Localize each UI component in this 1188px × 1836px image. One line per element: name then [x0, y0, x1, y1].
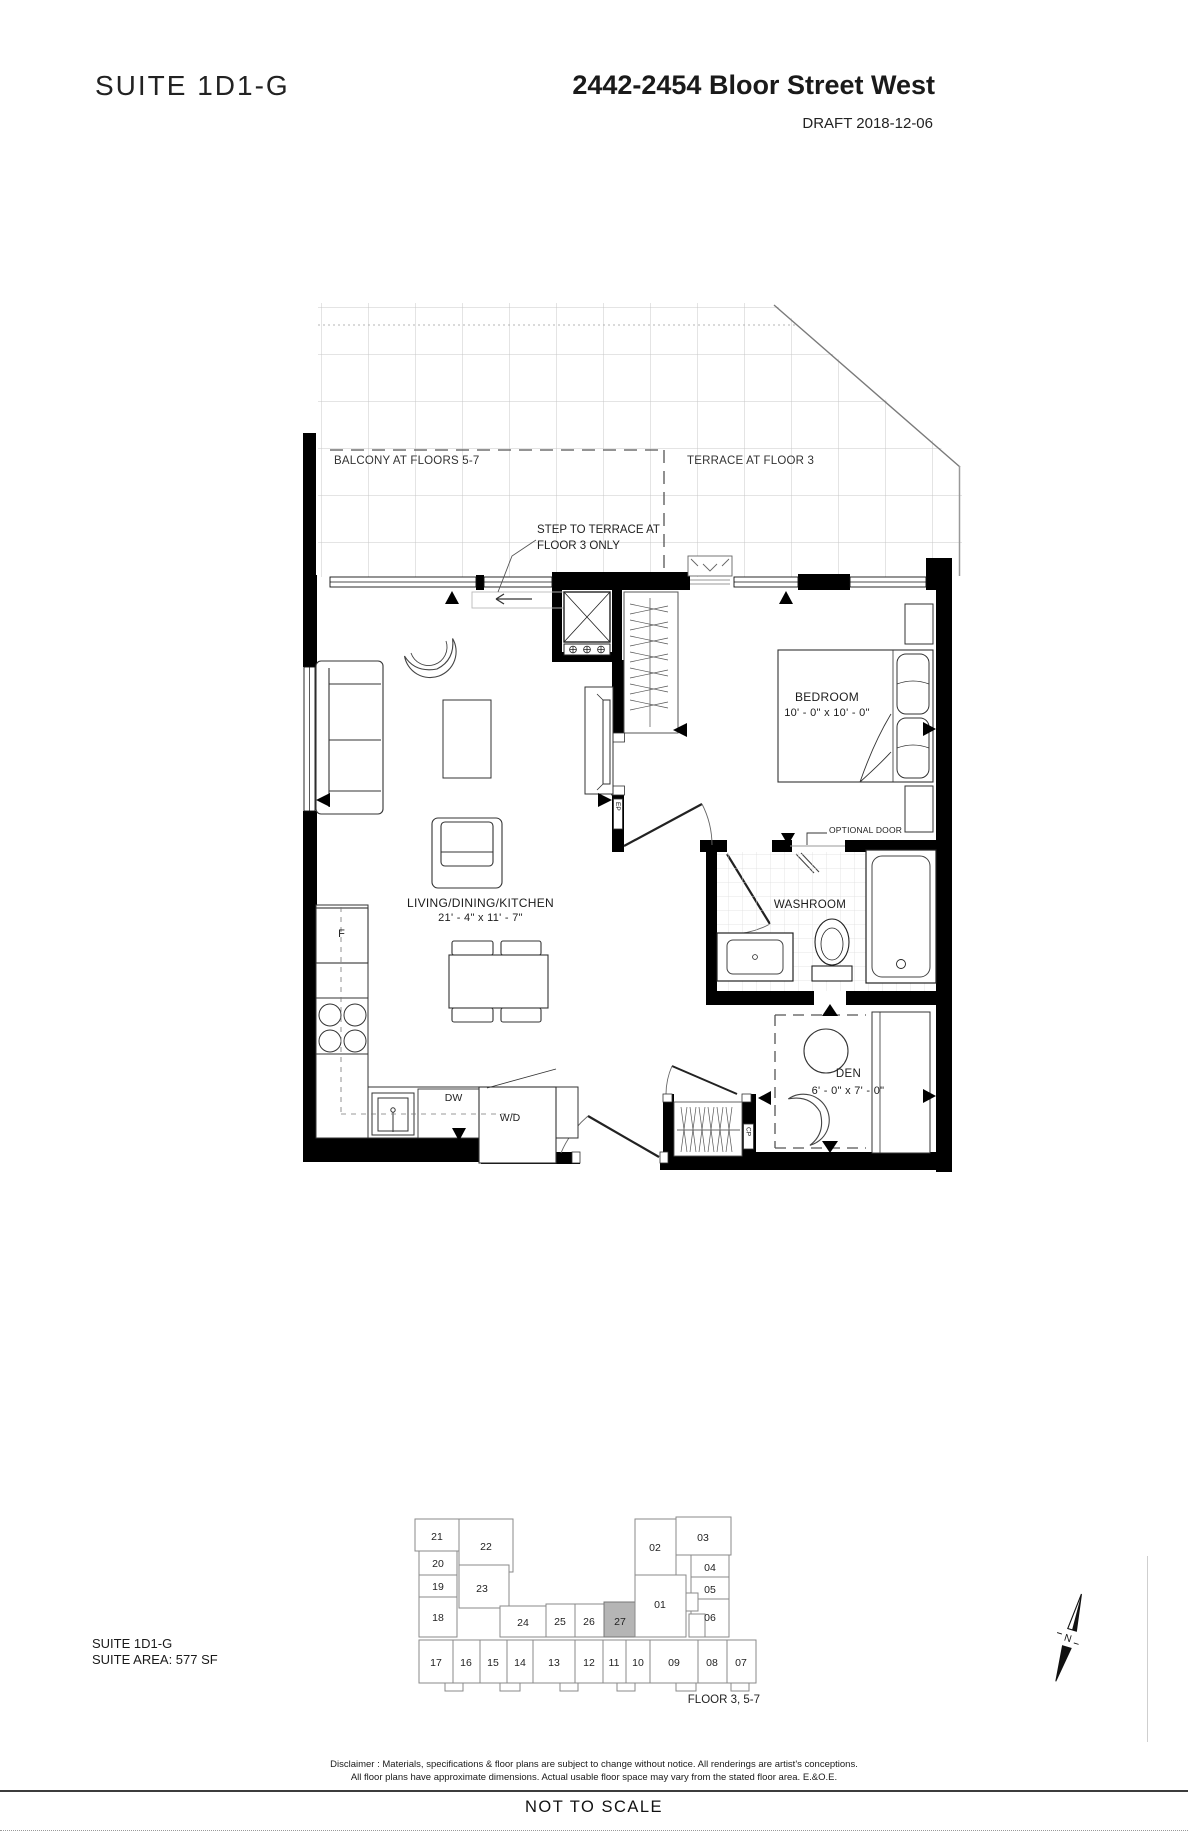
terrace-label: TERRACE AT FLOOR 3: [687, 455, 814, 467]
dining-table: [449, 941, 548, 1022]
disclaimer-line1: Disclaimer : Materials, specifications &…: [0, 1759, 1188, 1772]
bedroom-label: BEDROOM: [777, 690, 877, 704]
draft-date: DRAFT 2018-12-06: [802, 115, 933, 132]
cooktop: [316, 998, 368, 1054]
svg-text:03: 03: [697, 1532, 709, 1544]
washroom-fixtures: [717, 850, 936, 991]
living-dims: 21' - 4" x 11' - 7": [403, 912, 558, 924]
floorplan-drawing: [295, 295, 975, 1205]
suite-info: SUITE 1D1-G SUITE AREA: 577 SF: [92, 1636, 218, 1668]
svg-text:13: 13: [548, 1657, 560, 1669]
bathtub: [866, 850, 936, 983]
svg-text:23: 23: [476, 1583, 488, 1595]
svg-text:06: 06: [704, 1612, 716, 1624]
floorplan-sheet: SUITE 1D1-G 2442-2454 Bloor Street West …: [0, 0, 1188, 1836]
bottom-dotted-rule: [0, 1830, 1188, 1831]
svg-text:17: 17: [430, 1657, 442, 1669]
washroom-label: WASHROOM: [770, 899, 850, 911]
den-label: DEN: [826, 1068, 871, 1080]
svg-text:08: 08: [706, 1657, 718, 1669]
svg-text:20: 20: [432, 1558, 444, 1570]
svg-text:12: 12: [583, 1657, 595, 1669]
key-plan: 21 20 19 18 22 23 24 25 26 27 02 03 01 0…: [405, 1505, 775, 1705]
closet-panel-label: CP: [745, 1127, 752, 1136]
svg-text:15: 15: [487, 1657, 499, 1669]
optional-door-label: OPTIONAL DOOR: [829, 825, 902, 835]
disclaimer-line2: All floor plans have approximate dimensi…: [0, 1772, 1188, 1785]
coffee-table: [443, 700, 491, 778]
tv-unit: [585, 687, 613, 794]
svg-text:04: 04: [704, 1562, 716, 1574]
svg-text:10: 10: [632, 1657, 644, 1669]
svg-text:24: 24: [517, 1617, 529, 1629]
svg-text:27: 27: [614, 1616, 626, 1628]
step-note: STEP TO TERRACE AT FLOOR 3 ONLY: [537, 523, 660, 554]
electrical-panel-label: EP: [614, 802, 621, 811]
svg-text:02: 02: [649, 1542, 661, 1554]
svg-text:26: 26: [583, 1616, 595, 1628]
suite-info-name: SUITE 1D1-G: [92, 1636, 218, 1652]
footer-rule: [0, 1790, 1188, 1792]
living-label: LIVING/DINING/KITCHEN: [403, 896, 558, 910]
bedroom-dims: 10' - 0" x 10' - 0": [767, 707, 887, 719]
nightstand: [905, 604, 933, 644]
nightstand: [905, 786, 933, 832]
svg-text:16: 16: [460, 1657, 472, 1669]
den-desk: [872, 1012, 930, 1153]
terrace-door-marker: [688, 556, 732, 576]
not-to-scale-label: NOT TO SCALE: [0, 1798, 1188, 1817]
svg-text:05: 05: [704, 1584, 716, 1596]
shaft: [564, 592, 610, 655]
key-plan-floor-label: FLOOR 3, 5-7: [678, 1694, 760, 1706]
entry-closet-door: [663, 1066, 751, 1102]
building-address: 2442-2454 Bloor Street West: [572, 70, 935, 101]
svg-text:21: 21: [431, 1531, 443, 1543]
fridge-label: F: [335, 928, 348, 940]
page-title: SUITE 1D1-G: [95, 70, 290, 102]
sofa: [316, 661, 383, 814]
north-label: N: [1063, 1633, 1073, 1646]
washer-dryer: [479, 1087, 556, 1163]
svg-text:18: 18: [432, 1612, 444, 1624]
dishwasher-label: DW: [440, 1092, 467, 1104]
svg-text:07: 07: [735, 1657, 747, 1669]
den-dims: 6' - 0" x 7' - 0": [803, 1085, 893, 1097]
north-arrow-icon: N: [1030, 1578, 1110, 1708]
disclaimer: Disclaimer : Materials, specifications &…: [0, 1759, 1188, 1784]
bedroom-door: [624, 804, 712, 846]
svg-text:25: 25: [554, 1616, 566, 1628]
accent-chair: [405, 639, 457, 678]
svg-text:19: 19: [432, 1581, 444, 1593]
svg-text:09: 09: [668, 1657, 680, 1669]
svg-text:11: 11: [609, 1657, 620, 1669]
hall-closet: [624, 592, 678, 733]
svg-text:22: 22: [480, 1541, 492, 1553]
vanity: [717, 933, 793, 981]
den: [775, 1012, 930, 1153]
svg-text:14: 14: [514, 1657, 526, 1669]
entry-closet: [674, 1102, 754, 1156]
toilet: [812, 919, 852, 981]
balcony-label: BALCONY AT FLOORS 5-7: [334, 455, 479, 467]
suite-info-area: SUITE AREA: 577 SF: [92, 1652, 218, 1668]
svg-text:01: 01: [654, 1599, 666, 1611]
washer-dryer-label: W/D: [492, 1112, 528, 1124]
frame-border-line: [1147, 1556, 1148, 1742]
den-table: [804, 1029, 848, 1073]
den-chair: [788, 1092, 831, 1147]
armchair: [432, 818, 502, 888]
